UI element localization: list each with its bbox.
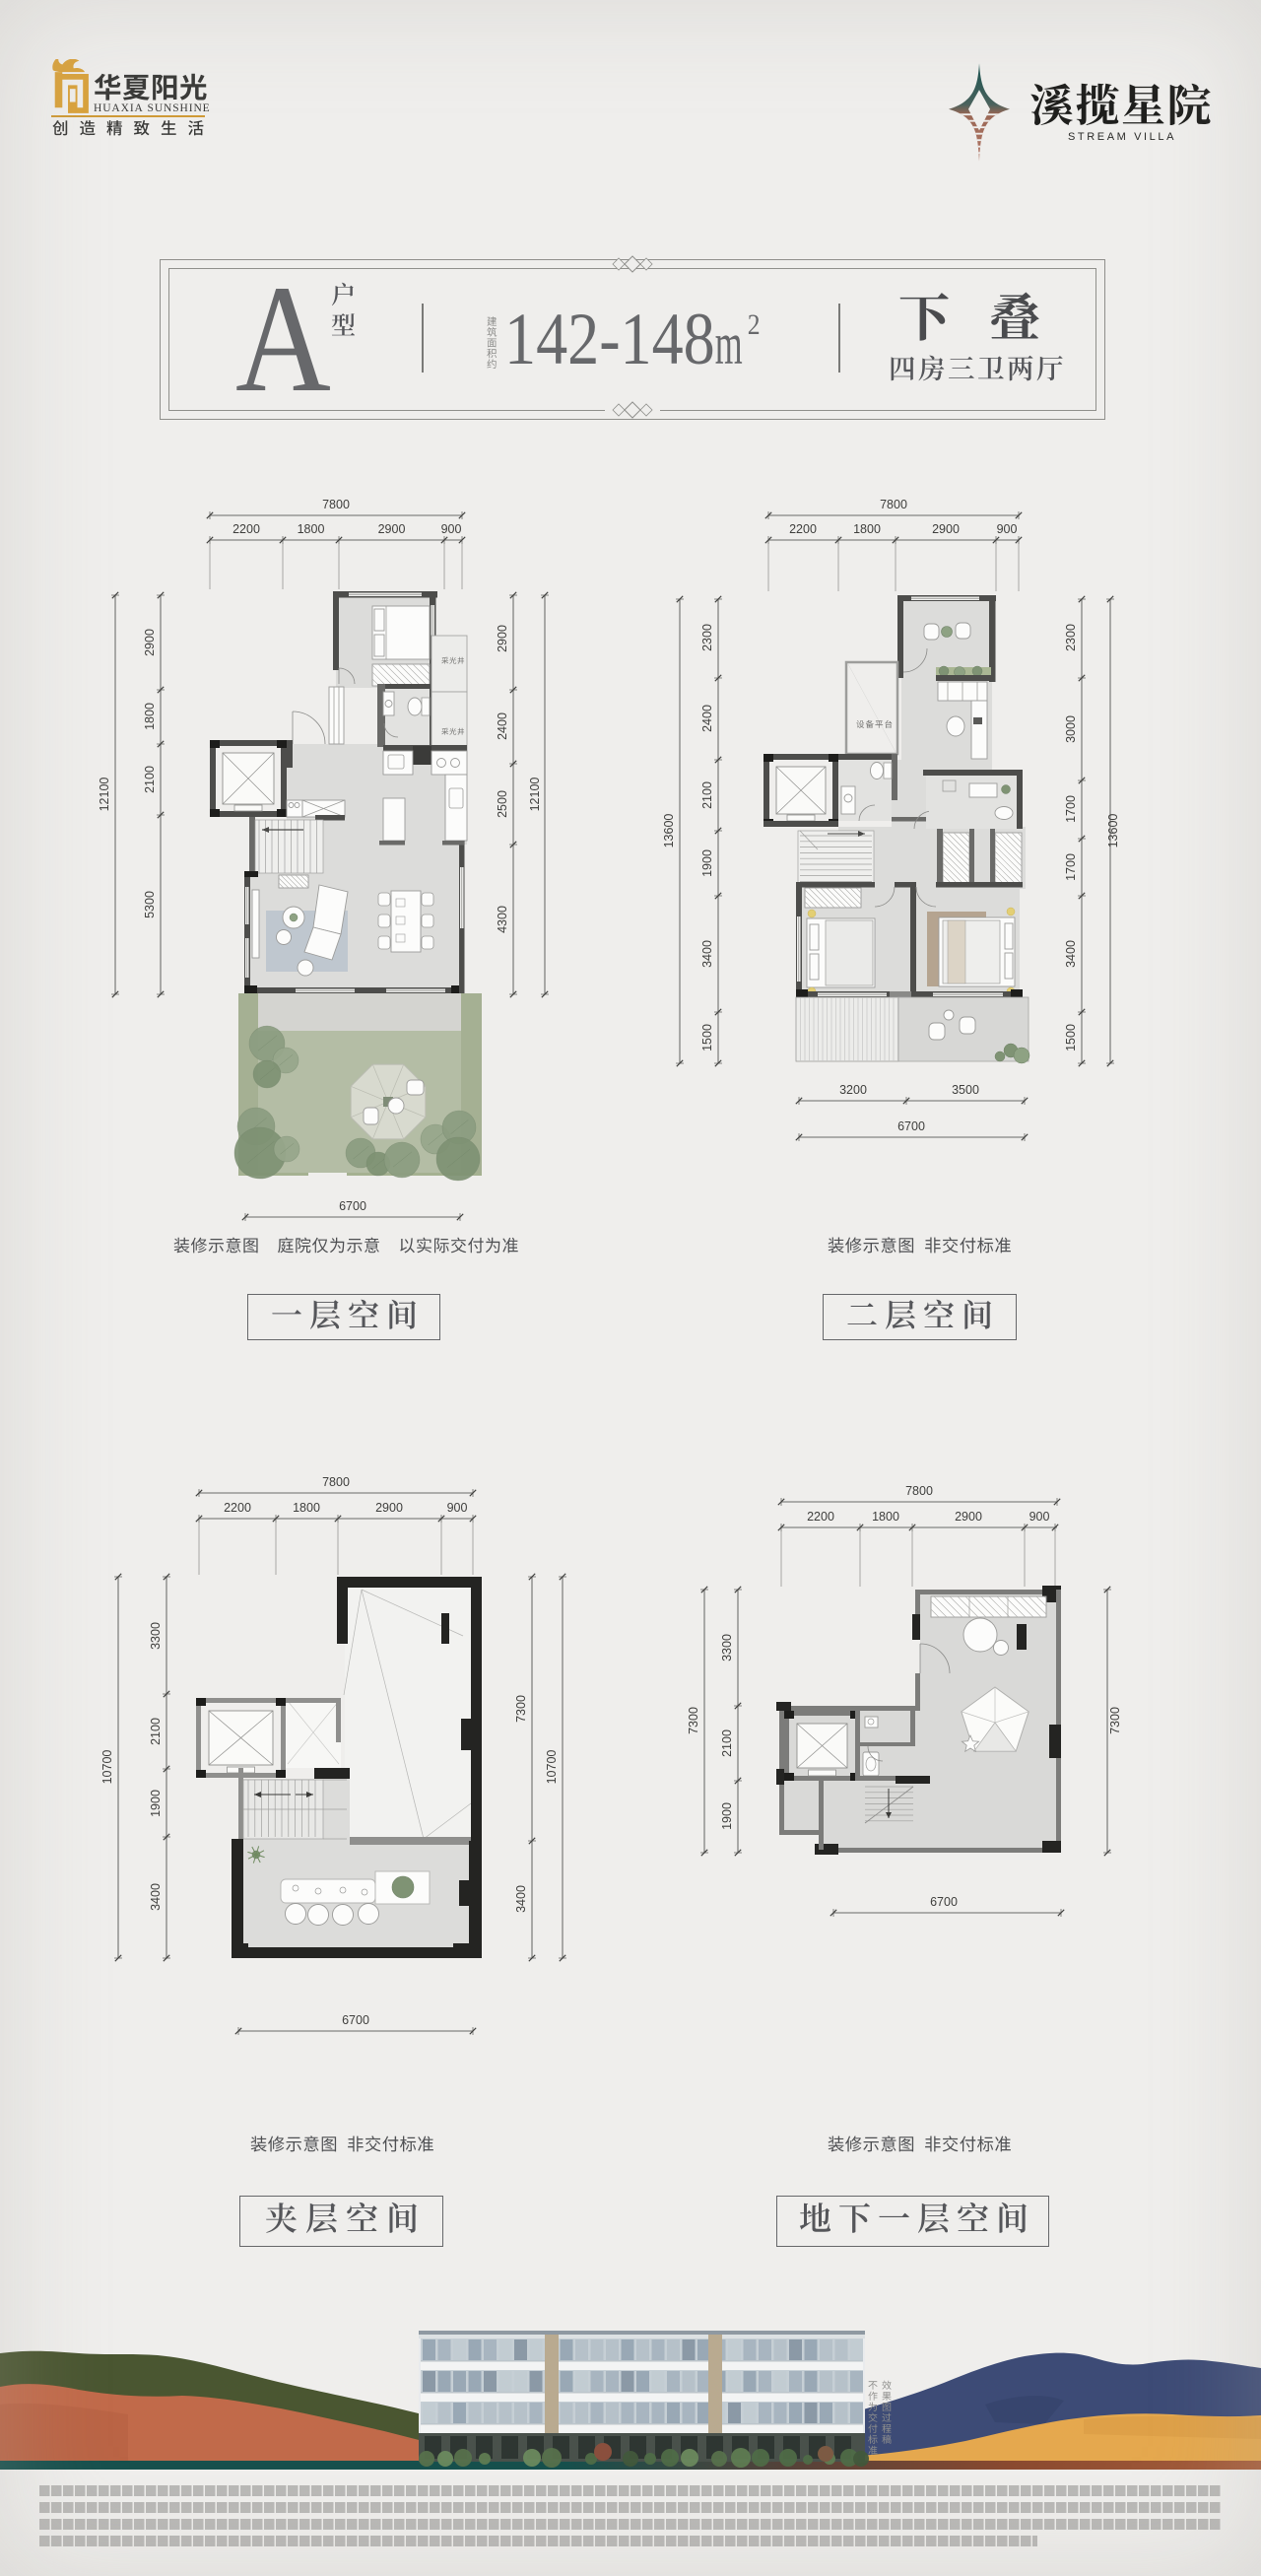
svg-text:900: 900 — [997, 522, 1018, 536]
svg-text:2400: 2400 — [496, 712, 509, 740]
svg-text:1500: 1500 — [1064, 1024, 1078, 1051]
svg-text:2900: 2900 — [143, 629, 157, 656]
svg-text:2100: 2100 — [143, 766, 157, 793]
svg-text:6700: 6700 — [342, 2013, 369, 2027]
svg-text:1800: 1800 — [853, 522, 881, 536]
svg-text:2100: 2100 — [149, 1718, 163, 1745]
svg-text:2100: 2100 — [700, 781, 714, 809]
svg-text:7300: 7300 — [514, 1695, 528, 1723]
svg-text:7800: 7800 — [322, 1476, 350, 1489]
svg-text:2400: 2400 — [700, 705, 714, 732]
svg-text:3300: 3300 — [720, 1634, 734, 1661]
svg-text:3400: 3400 — [1064, 940, 1078, 968]
svg-text:2200: 2200 — [224, 1501, 251, 1515]
svg-text:3000: 3000 — [1064, 715, 1078, 743]
svg-text:3300: 3300 — [149, 1622, 163, 1650]
svg-text:10700: 10700 — [100, 1750, 114, 1785]
svg-text:1700: 1700 — [1064, 853, 1078, 881]
svg-text:2300: 2300 — [700, 624, 714, 651]
svg-text:2200: 2200 — [807, 1510, 834, 1524]
svg-text:900: 900 — [441, 522, 462, 536]
svg-text:1700: 1700 — [1064, 795, 1078, 823]
svg-text:1900: 1900 — [149, 1790, 163, 1817]
svg-text:1900: 1900 — [720, 1802, 734, 1830]
svg-text:1800: 1800 — [872, 1510, 899, 1524]
svg-text:2200: 2200 — [789, 522, 817, 536]
svg-text:3400: 3400 — [700, 940, 714, 968]
svg-text:3500: 3500 — [952, 1083, 979, 1097]
svg-text:2900: 2900 — [496, 625, 509, 652]
svg-text:2300: 2300 — [1064, 624, 1078, 651]
svg-text:1500: 1500 — [700, 1024, 714, 1051]
svg-text:2900: 2900 — [955, 1510, 982, 1524]
svg-text:6700: 6700 — [897, 1119, 925, 1133]
svg-text:6700: 6700 — [339, 1199, 366, 1213]
svg-text:900: 900 — [447, 1501, 468, 1515]
svg-text:2100: 2100 — [720, 1729, 734, 1757]
svg-text:2200: 2200 — [232, 522, 260, 536]
svg-text:7300: 7300 — [687, 1707, 700, 1734]
svg-text:5300: 5300 — [143, 891, 157, 918]
svg-text:3200: 3200 — [839, 1083, 867, 1097]
svg-text:3400: 3400 — [149, 1883, 163, 1911]
svg-text:2900: 2900 — [932, 522, 960, 536]
svg-text:1800: 1800 — [143, 703, 157, 730]
svg-text:12100: 12100 — [98, 778, 111, 812]
svg-text:7800: 7800 — [905, 1484, 933, 1498]
svg-text:1800: 1800 — [293, 1501, 320, 1515]
svg-text:6700: 6700 — [930, 1895, 958, 1909]
svg-text:7300: 7300 — [1108, 1707, 1122, 1734]
svg-text:7800: 7800 — [880, 498, 907, 511]
svg-text:1900: 1900 — [700, 849, 714, 877]
svg-text:2900: 2900 — [378, 522, 406, 536]
svg-text:7800: 7800 — [322, 498, 350, 511]
svg-text:10700: 10700 — [545, 1750, 559, 1785]
svg-text:4300: 4300 — [496, 906, 509, 933]
svg-text:900: 900 — [1029, 1510, 1050, 1524]
svg-text:12100: 12100 — [528, 778, 542, 812]
svg-text:13600: 13600 — [1106, 814, 1120, 848]
svg-text:3400: 3400 — [514, 1885, 528, 1913]
svg-text:13600: 13600 — [662, 814, 676, 848]
svg-text:1800: 1800 — [298, 522, 325, 536]
svg-text:2500: 2500 — [496, 790, 509, 818]
svg-text:2900: 2900 — [375, 1501, 403, 1515]
